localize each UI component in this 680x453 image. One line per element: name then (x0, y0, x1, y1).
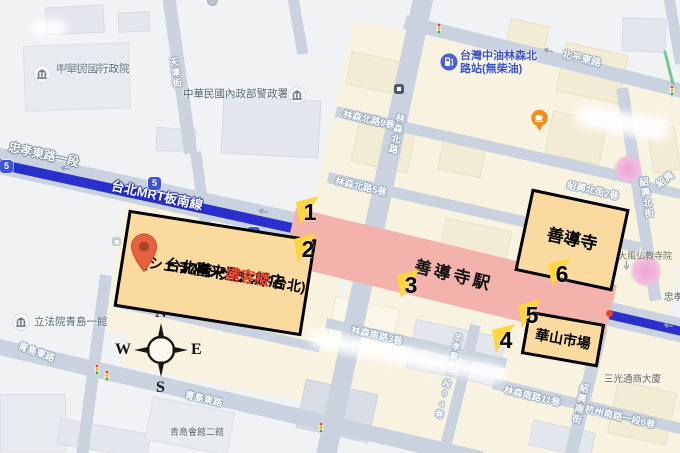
down-arrow-icon (623, 261, 630, 270)
street-label: 天津街 (167, 57, 181, 90)
poi-label-legislative-yuan[interactable]: 立法院青島一館 (34, 316, 108, 328)
poi-subname: 連邦政府庁舎 (56, 63, 104, 72)
poi-name-line1: 台灣中油林森北 (460, 50, 537, 63)
traffic-light-icon (436, 22, 442, 35)
gas-station-icon[interactable] (440, 53, 458, 71)
traffic-light-icon (669, 84, 675, 97)
exit-marker-6[interactable]: 6 (538, 254, 578, 294)
compass-south-label: S (156, 379, 165, 397)
exit-number: 3 (399, 272, 423, 300)
exit-marker-5[interactable]: 5 (508, 295, 548, 335)
mrt-stop-dot (606, 310, 613, 317)
map-canvas[interactable]: 忠孝東路一段 台北MRT板南線 北平東路 天津街 林森北路 林森北路9巷 林森北… (0, 0, 680, 453)
building (221, 95, 322, 158)
exit-marker-2[interactable]: 2 (284, 229, 324, 269)
route-shield: 5 (0, 160, 13, 173)
small-poi-icon[interactable] (112, 237, 121, 246)
poi-label-sanguang[interactable]: 三光通商大廈 (604, 371, 661, 385)
government-building-icon[interactable] (288, 86, 306, 104)
traffic-light-icon (94, 363, 100, 376)
cafe-pin-icon[interactable] (530, 109, 549, 132)
poi-label-cpc-station[interactable]: 台灣中油林森北 路站(無柴油) (460, 50, 537, 75)
map-pin-icon (130, 233, 158, 273)
route-shield: 5 (148, 177, 161, 190)
building (56, 418, 151, 453)
poi-label-zhongxiao-partial: 忠孝工 (664, 289, 680, 303)
compass-east-label: E (191, 341, 202, 359)
blurred-label (30, 20, 66, 36)
traffic-light-icon (104, 369, 110, 382)
temple-name: 善導寺 (545, 224, 599, 256)
exit-number: 6 (550, 261, 574, 289)
traffic-light-icon (318, 421, 324, 434)
building (621, 17, 666, 53)
store-icon[interactable] (394, 84, 404, 94)
exit-number: 1 (298, 199, 322, 227)
building (117, 11, 150, 33)
exit-number: 2 (296, 236, 320, 264)
exit-marker-3[interactable]: 3 (387, 265, 427, 305)
hotel-floor: 17階 (179, 259, 213, 281)
compass-west-label: W (115, 341, 131, 359)
government-building-icon[interactable] (12, 313, 30, 331)
compass-rose-icon (133, 322, 189, 378)
poi-label-police-agency[interactable]: 中華民國內政部警政署 (183, 88, 288, 100)
poi-name-line2: 路站(無柴油) (460, 63, 537, 76)
poi-label-qingdao-hall[interactable]: 青島會館二館 (170, 425, 224, 438)
pink-marker-blob (614, 155, 642, 183)
hotel-restaurant-name: 請客楼 (224, 266, 271, 290)
poi-dot[interactable] (207, 0, 218, 6)
road-top-middle (287, 0, 308, 55)
government-building-icon[interactable] (33, 65, 51, 83)
exit-number: 5 (520, 302, 544, 330)
exit-marker-1[interactable]: 1 (286, 192, 326, 232)
